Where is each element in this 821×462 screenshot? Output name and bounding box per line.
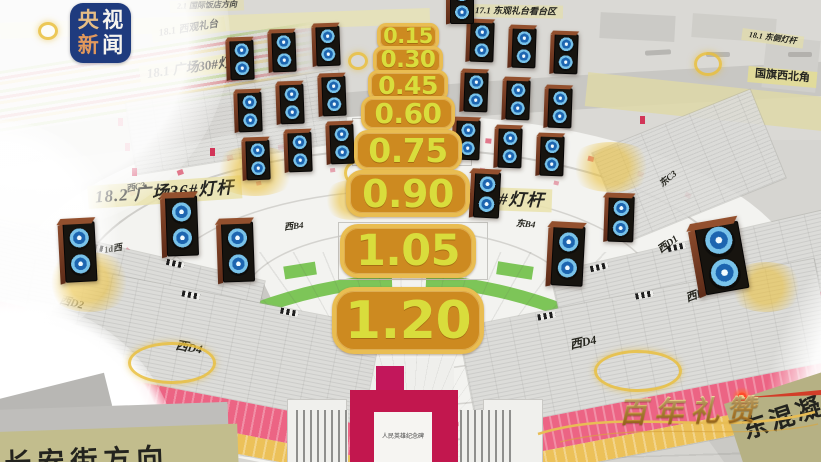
loudspeaker-icon [553, 34, 578, 75]
lamp-glow [566, 142, 656, 192]
loudspeaker-icon [497, 128, 522, 169]
loudspeaker-icon [229, 40, 254, 81]
monument-steps [460, 410, 512, 462]
monument-label: 人民英雄纪念碑 [374, 412, 432, 462]
delay-badge: 0.60 [361, 96, 455, 131]
loudspeaker-icon [450, 0, 474, 24]
lamp-ring [348, 52, 368, 70]
lamp-ring [694, 52, 722, 76]
loudspeaker-icon [279, 84, 304, 125]
delay-badge: 0.75 [354, 130, 462, 171]
monument-peoples-heroes: 人民英雄纪念碑 [270, 360, 560, 462]
zone-label-east-b4: 东B4 [515, 216, 536, 231]
logo-char: 央 [76, 8, 101, 33]
delay-badge: 1.20 [332, 287, 484, 354]
zone-label-west-b4: 西B4 [283, 218, 304, 233]
loudspeaker-icon [165, 195, 199, 256]
loudspeaker-icon [315, 26, 340, 67]
loudspeaker-icon [329, 124, 354, 165]
delay-badge: 0.90 [346, 170, 470, 217]
loudspeaker-icon [237, 92, 262, 133]
loudspeaker-icon [473, 171, 501, 218]
loudspeaker-icon [321, 76, 346, 117]
loudspeaker-icon [539, 136, 564, 177]
loudspeaker-icon [221, 221, 255, 282]
lamp-ring [38, 22, 58, 40]
loudspeaker-icon [607, 196, 635, 243]
tv-news-frame: 人民英雄纪念碑 2.1 国际饭店方向 18.1 西观礼台 18.1 广场30#灯… [0, 0, 821, 462]
centenary-watermark: 百年礼赞 [618, 387, 763, 432]
delay-badge: 1.05 [340, 224, 476, 278]
loudspeaker-icon [287, 132, 312, 173]
band-east-viewing-stand: 17.1 东观礼台看台区 [468, 4, 563, 19]
loudspeaker-icon [62, 221, 97, 283]
monument-steps [296, 410, 348, 462]
loudspeaker-icon [505, 80, 530, 121]
loudspeaker-icon [271, 32, 296, 73]
loudspeaker-icon [547, 88, 572, 129]
avenue-label: 长安街方向 [4, 436, 170, 462]
loudspeaker-icon [245, 140, 270, 181]
loudspeaker-icon [511, 28, 536, 69]
logo-char: 视 [101, 8, 126, 33]
lamp-ring [128, 342, 216, 384]
loudspeaker-icon [550, 225, 585, 287]
loudspeaker-icon [469, 22, 494, 63]
logo-char: 新 [76, 33, 101, 58]
cctv-news-logo: 央 视 新 闻 [70, 3, 131, 63]
loudspeaker-icon [463, 72, 488, 113]
logo-char: 闻 [101, 33, 126, 58]
